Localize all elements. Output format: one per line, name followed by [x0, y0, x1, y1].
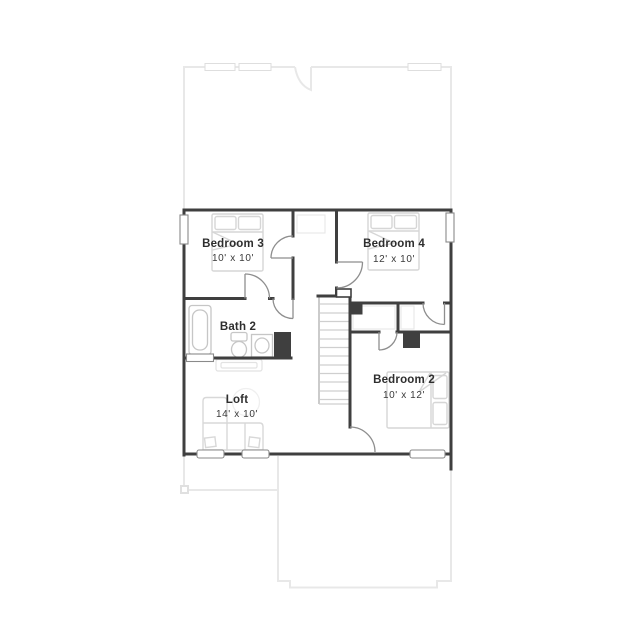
door-swing-arc	[273, 299, 293, 319]
toilet-bowl	[232, 342, 247, 358]
door-swing-arc	[350, 427, 375, 452]
toilet-tank	[231, 333, 247, 342]
lower-level-outline-bottom	[181, 456, 451, 588]
bedroom-2-door	[350, 427, 375, 452]
door-swing-arc	[271, 236, 293, 258]
bed-pillow	[215, 217, 236, 230]
bathtub-basin	[193, 310, 208, 350]
lower-level-stair-notch	[295, 67, 311, 90]
loft-console-table	[216, 360, 262, 372]
stairs	[319, 296, 349, 404]
wall-post	[403, 331, 420, 349]
window-mark	[205, 64, 235, 71]
bedroom-3-label: Bedroom 3	[202, 238, 264, 250]
lower-level-left-stub	[184, 456, 278, 490]
wall-post	[349, 302, 363, 315]
bedroom-2-label: Bedroom 2	[373, 374, 435, 386]
window	[410, 450, 445, 458]
loft-dimensions: 14' x 10'	[216, 409, 258, 420]
door-swing-arc	[337, 262, 363, 288]
sofa-arm-pillow	[204, 437, 216, 448]
sofa-arm-pillow	[248, 437, 260, 448]
sink-basin	[255, 338, 269, 353]
loft-label: Loft	[226, 394, 249, 406]
lower-level-top-walls	[184, 67, 451, 210]
bedroom-2-dimensions: 10' x 12'	[383, 390, 425, 401]
window-mark	[408, 64, 441, 71]
window	[446, 213, 454, 242]
stair-landing	[337, 289, 352, 297]
bedroom-3-dimensions: 10' x 10'	[212, 253, 254, 264]
bedroom-4-label: Bedroom 4	[363, 238, 425, 250]
window	[180, 215, 188, 244]
bedroom-3-door	[245, 274, 270, 299]
bed-pillow	[433, 403, 447, 425]
bedroom-4-closet-shelf	[401, 306, 414, 329]
bedroom-4-closet-door	[423, 303, 445, 325]
window	[242, 450, 269, 458]
bath-2-door	[273, 299, 293, 319]
lower-level-corner-mark	[181, 486, 188, 493]
window-mark	[239, 64, 271, 71]
lower-level-bottom-walls	[278, 456, 451, 588]
bath-2-label: Bath 2	[220, 321, 256, 333]
door-swing-arc	[379, 332, 397, 350]
bath-opening	[187, 354, 214, 362]
lower-level-outline-top	[184, 67, 451, 210]
door-swing-arc	[423, 303, 445, 325]
console-inner	[221, 363, 257, 369]
floor-plan-drawing: Bedroom 3 10' x 10' Bedroom 4 12' x 10' …	[0, 0, 640, 640]
bedroom-2-closet-door	[379, 332, 397, 350]
window	[197, 450, 224, 458]
bed-pillow	[395, 216, 417, 229]
door-swing-arc	[245, 274, 270, 299]
bed-pillow	[433, 376, 447, 399]
floor-plan-canvas: Bedroom 3 10' x 10' Bedroom 4 12' x 10' …	[0, 0, 640, 640]
wall-post	[274, 332, 291, 358]
bedroom-3-closet-shelf	[297, 215, 325, 233]
bed-pillow	[239, 217, 261, 230]
bedroom-4-dimensions: 12' x 10'	[373, 254, 415, 265]
bedroom-3-closet-door	[271, 236, 293, 258]
bed-pillow	[371, 216, 392, 229]
bedroom-4-door	[337, 262, 363, 288]
